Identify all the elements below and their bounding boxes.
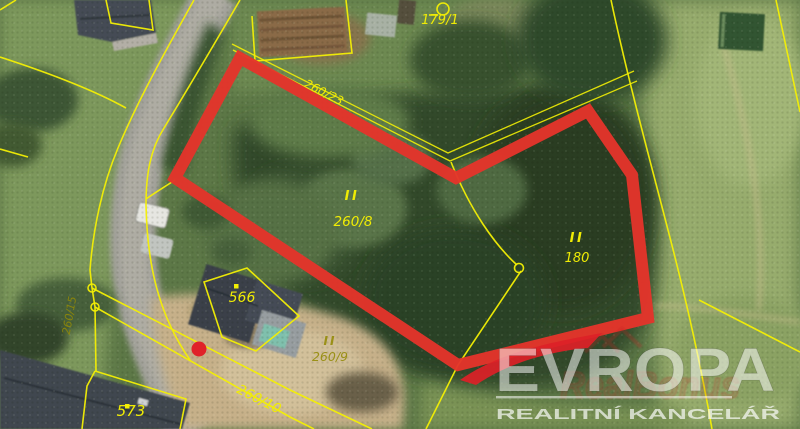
parcel-label-260-9: 260/9 — [312, 349, 348, 364]
highlighted-parcel-outline — [175, 58, 648, 365]
building-label-566: 566 — [229, 290, 256, 306]
parcel-label-179-1: 179/1 — [421, 13, 458, 28]
parcel-label-260-10: 260/10 — [234, 382, 284, 418]
building-outline-top-left — [106, 0, 153, 30]
map-annotation-layer: 179/1 260/23 II 260/8 II 180 566 II 260/… — [0, 0, 800, 429]
parcel-label-180: 180 — [565, 251, 590, 266]
boundary-to-red-corner — [146, 180, 175, 199]
parcel-outline-566 — [204, 268, 299, 351]
brand-watermark-text: EVROPA — [495, 336, 775, 404]
meadow-boundary-top-right — [776, 0, 800, 112]
aerial-cadastral-map: 179/1 260/23 II 260/8 II 180 566 II 260/… — [0, 0, 800, 429]
parcel-label-260-8: 260/8 — [334, 214, 373, 230]
brand-subtitle-text: REALITNÍ KANCELÁŘ — [496, 405, 780, 423]
parcel-outline-573 — [82, 371, 186, 429]
watermark: RealBonus EVROPA REALITNÍ KANCELÁŘ — [460, 329, 780, 423]
watermark-divider-line — [496, 396, 732, 398]
boundary-left-upper — [0, 57, 126, 108]
road-right-boundary — [146, 0, 240, 360]
boundary-point-square-566 — [234, 284, 239, 289]
land-class-mark-260-9: II — [324, 334, 337, 348]
building-label-573: 573 — [117, 402, 146, 420]
boundary-left-short — [0, 149, 28, 157]
wood-pile-outline — [252, 0, 352, 61]
parcel-label-260-15: 260/15 — [60, 295, 80, 335]
land-class-mark-180: II — [570, 231, 585, 246]
top-double-boundary-inner — [233, 50, 637, 161]
top-double-boundary-outer — [232, 44, 634, 153]
highlight-layer — [175, 58, 648, 365]
location-marker-dot — [192, 342, 207, 357]
land-class-mark-260-8: II — [345, 189, 360, 204]
boundary-corner-top-left — [0, 0, 16, 10]
boundary-point-circle — [515, 264, 524, 273]
